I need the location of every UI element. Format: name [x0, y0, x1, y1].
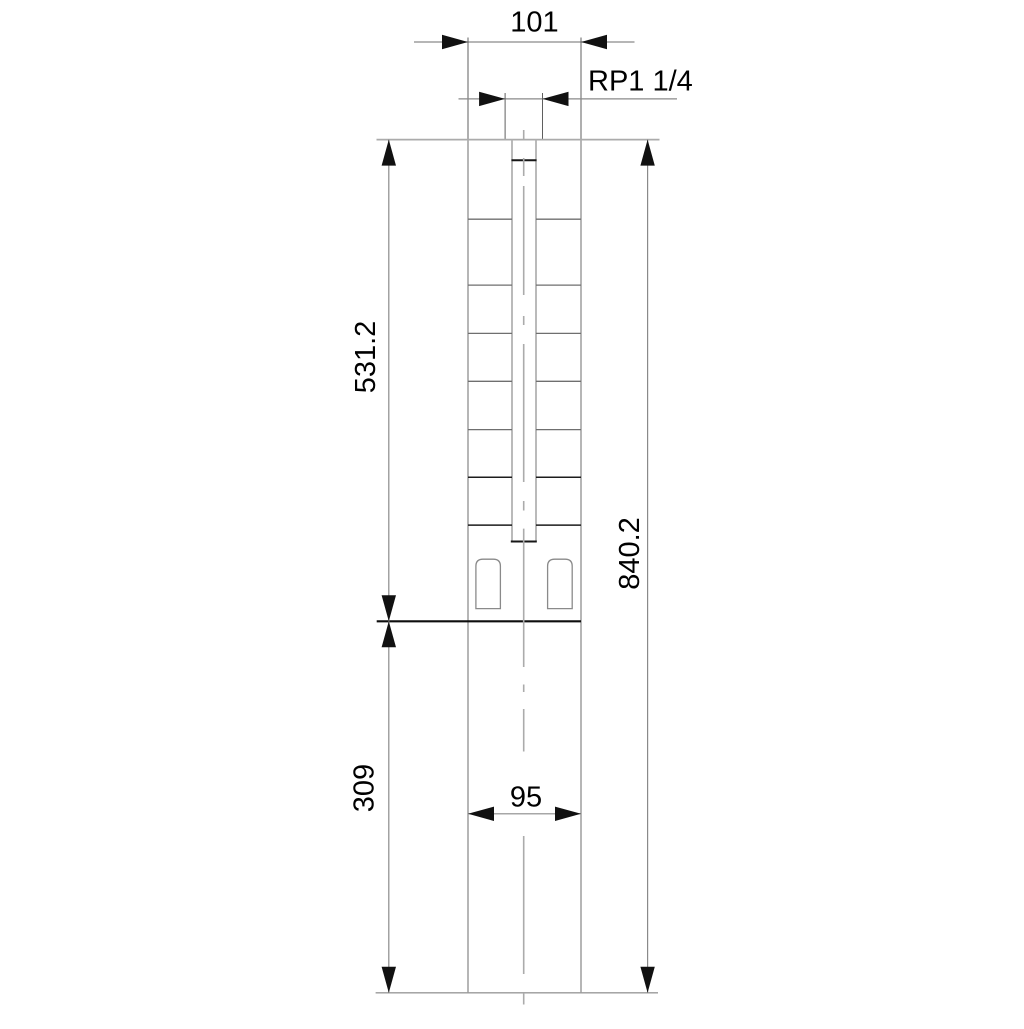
svg-text:309: 309 [349, 764, 381, 812]
svg-text:101: 101 [510, 7, 558, 39]
svg-text:531.2: 531.2 [350, 321, 382, 394]
svg-text:95: 95 [510, 782, 542, 814]
svg-text:RP1 1/4: RP1 1/4 [588, 66, 693, 98]
svg-text:840.2: 840.2 [614, 517, 646, 590]
